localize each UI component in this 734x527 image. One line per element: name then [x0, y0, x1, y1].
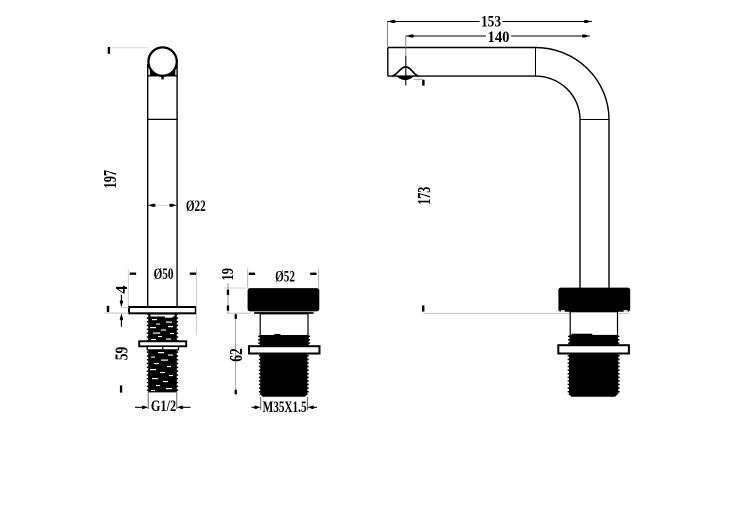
svg-text:19: 19	[218, 268, 237, 281]
svg-text:59: 59	[111, 347, 131, 361]
svg-text:Ø50: Ø50	[154, 266, 174, 283]
svg-text:Ø22: Ø22	[186, 198, 206, 215]
svg-text:173: 173	[414, 187, 434, 205]
svg-text:197: 197	[100, 170, 120, 189]
svg-text:Ø52: Ø52	[275, 269, 295, 286]
svg-text:G1/2: G1/2	[151, 398, 176, 415]
svg-text:140: 140	[488, 29, 510, 46]
svg-text:4: 4	[112, 285, 131, 293]
svg-text:M35X1.5: M35X1.5	[263, 399, 307, 416]
svg-text:62: 62	[226, 348, 246, 362]
